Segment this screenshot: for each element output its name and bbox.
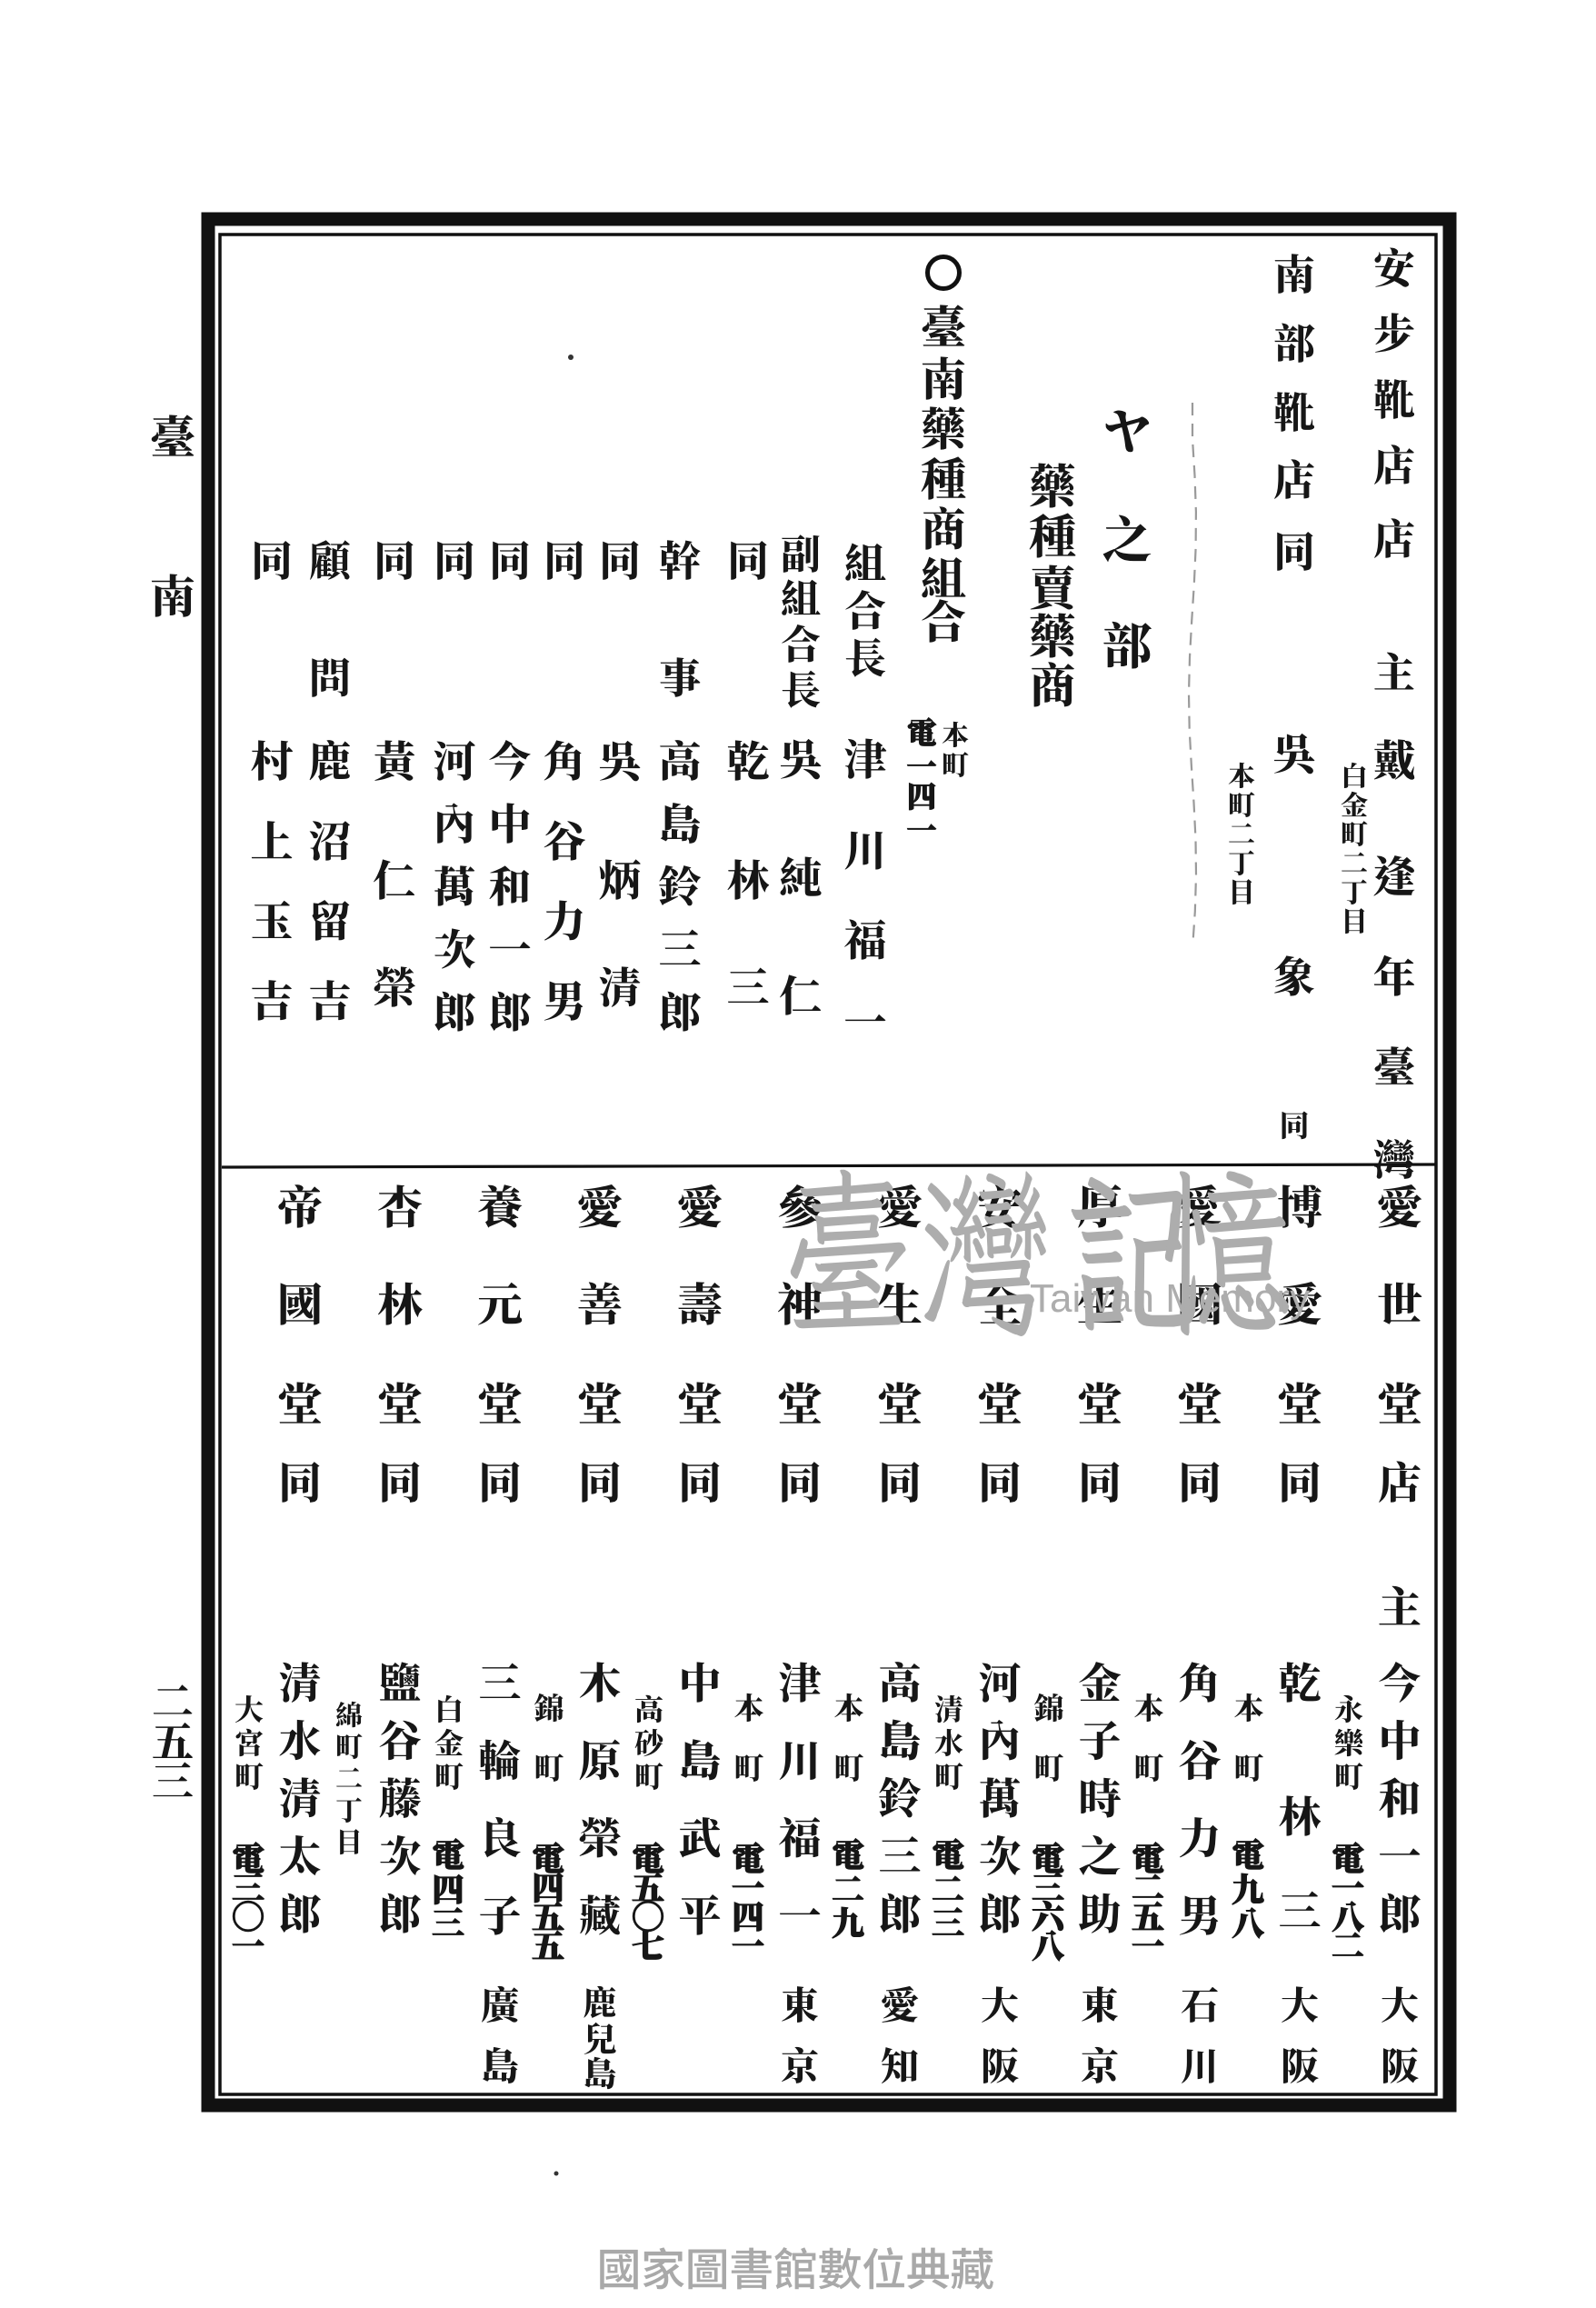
svg-text:Taiwan Memory: Taiwan Memory — [1030, 1276, 1310, 1321]
